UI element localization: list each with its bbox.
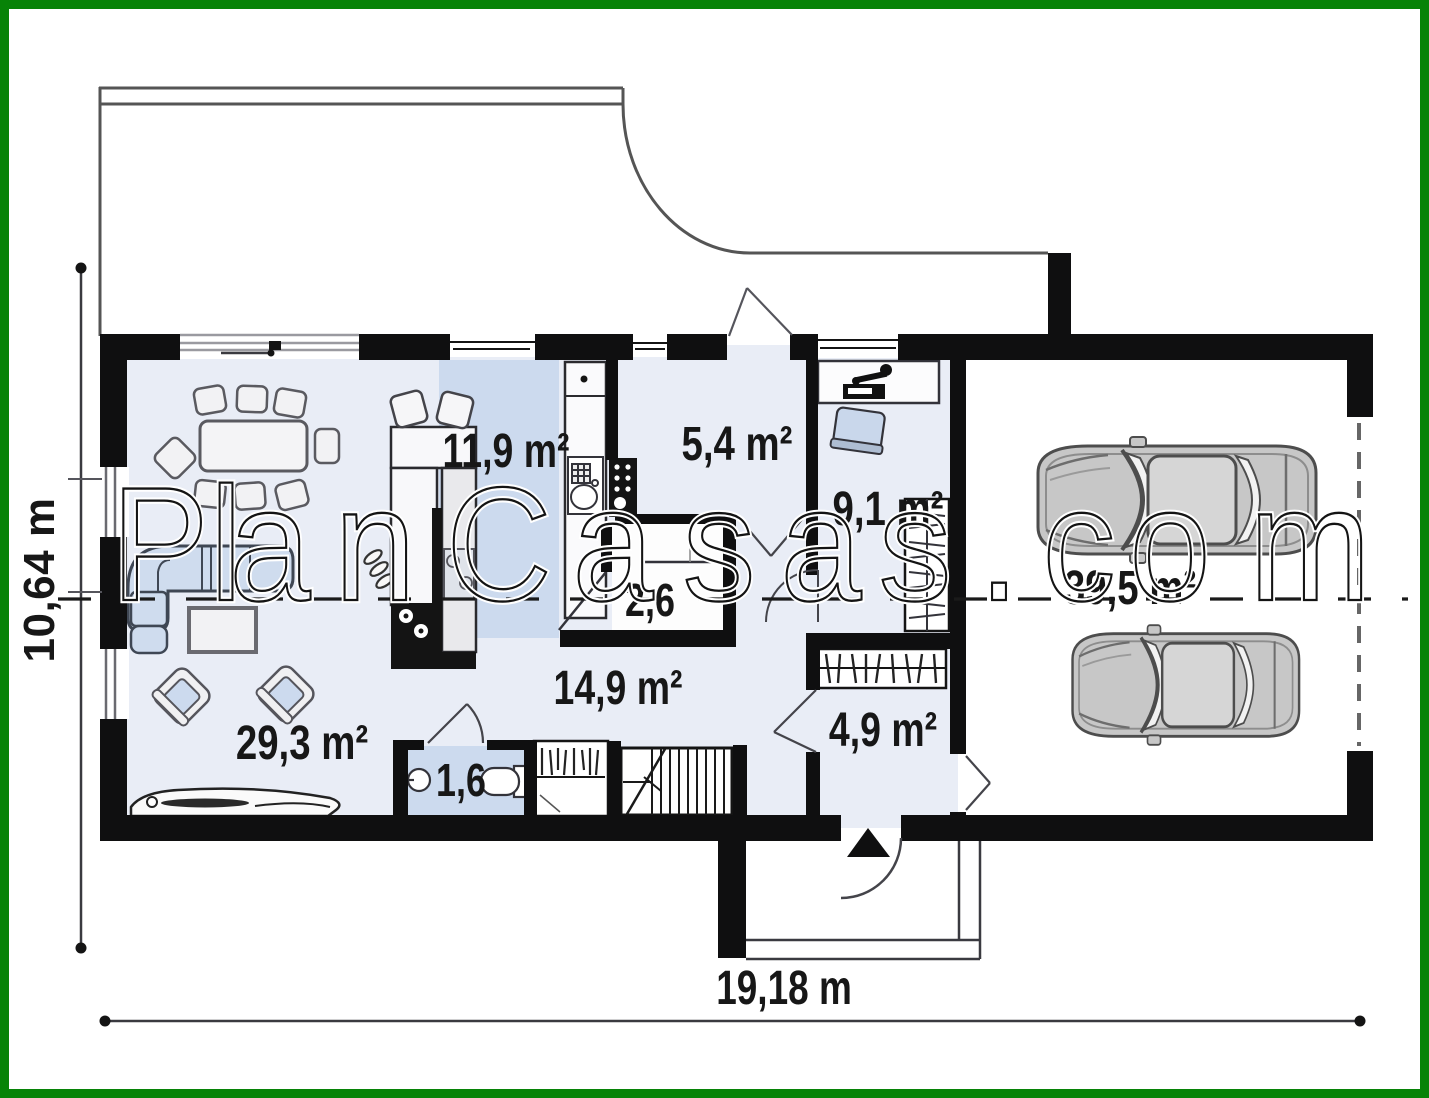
svg-text:o: o (1129, 453, 1210, 635)
svg-text:29,3 m²: 29,3 m² (236, 717, 368, 770)
svg-text:a: a (229, 453, 310, 635)
svg-text:s: s (683, 453, 756, 635)
svg-text:.: . (979, 453, 1020, 635)
svg-text:P: P (111, 453, 208, 635)
svg-text:c: c (1043, 453, 1116, 635)
svg-text:14,9 m²: 14,9 m² (553, 662, 682, 716)
svg-text:n: n (334, 453, 415, 635)
svg-text:m: m (1249, 453, 1370, 635)
svg-text:a: a (780, 453, 861, 635)
svg-text:4,9 m²: 4,9 m² (829, 704, 937, 758)
svg-text:1,6: 1,6 (436, 755, 486, 806)
svg-text:C: C (446, 453, 551, 635)
svg-text:a: a (572, 453, 653, 635)
svg-text:s: s (879, 453, 952, 635)
svg-text:19,18 m: 19,18 m (716, 961, 852, 1015)
svg-text:10,64 m: 10,64 m (15, 498, 64, 663)
